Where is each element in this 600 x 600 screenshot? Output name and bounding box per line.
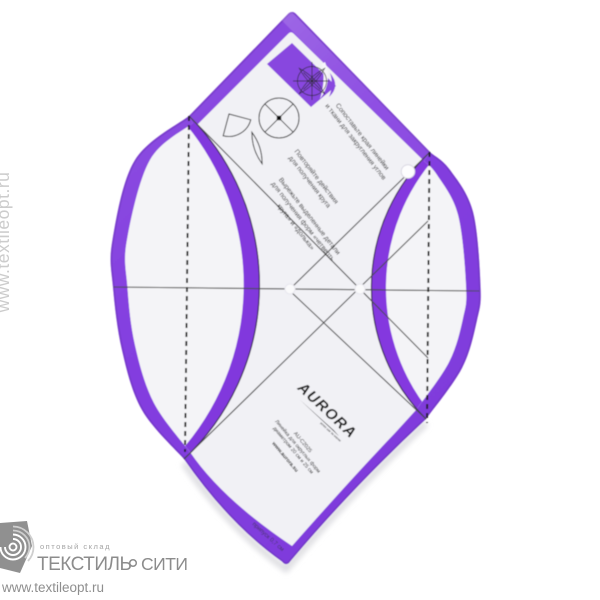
svg-text:www.textileopt.ru: www.textileopt.ru: [0, 172, 13, 314]
svg-text:оптовый склад: оптовый склад: [40, 542, 111, 551]
svg-text:www.textileopt.ru: www.textileopt.ru: [1, 580, 104, 595]
svg-text:ТЕКСТИЛЬ: ТЕКСТИЛЬ: [37, 554, 131, 575]
svg-text:СИТИ: СИТИ: [141, 554, 187, 574]
